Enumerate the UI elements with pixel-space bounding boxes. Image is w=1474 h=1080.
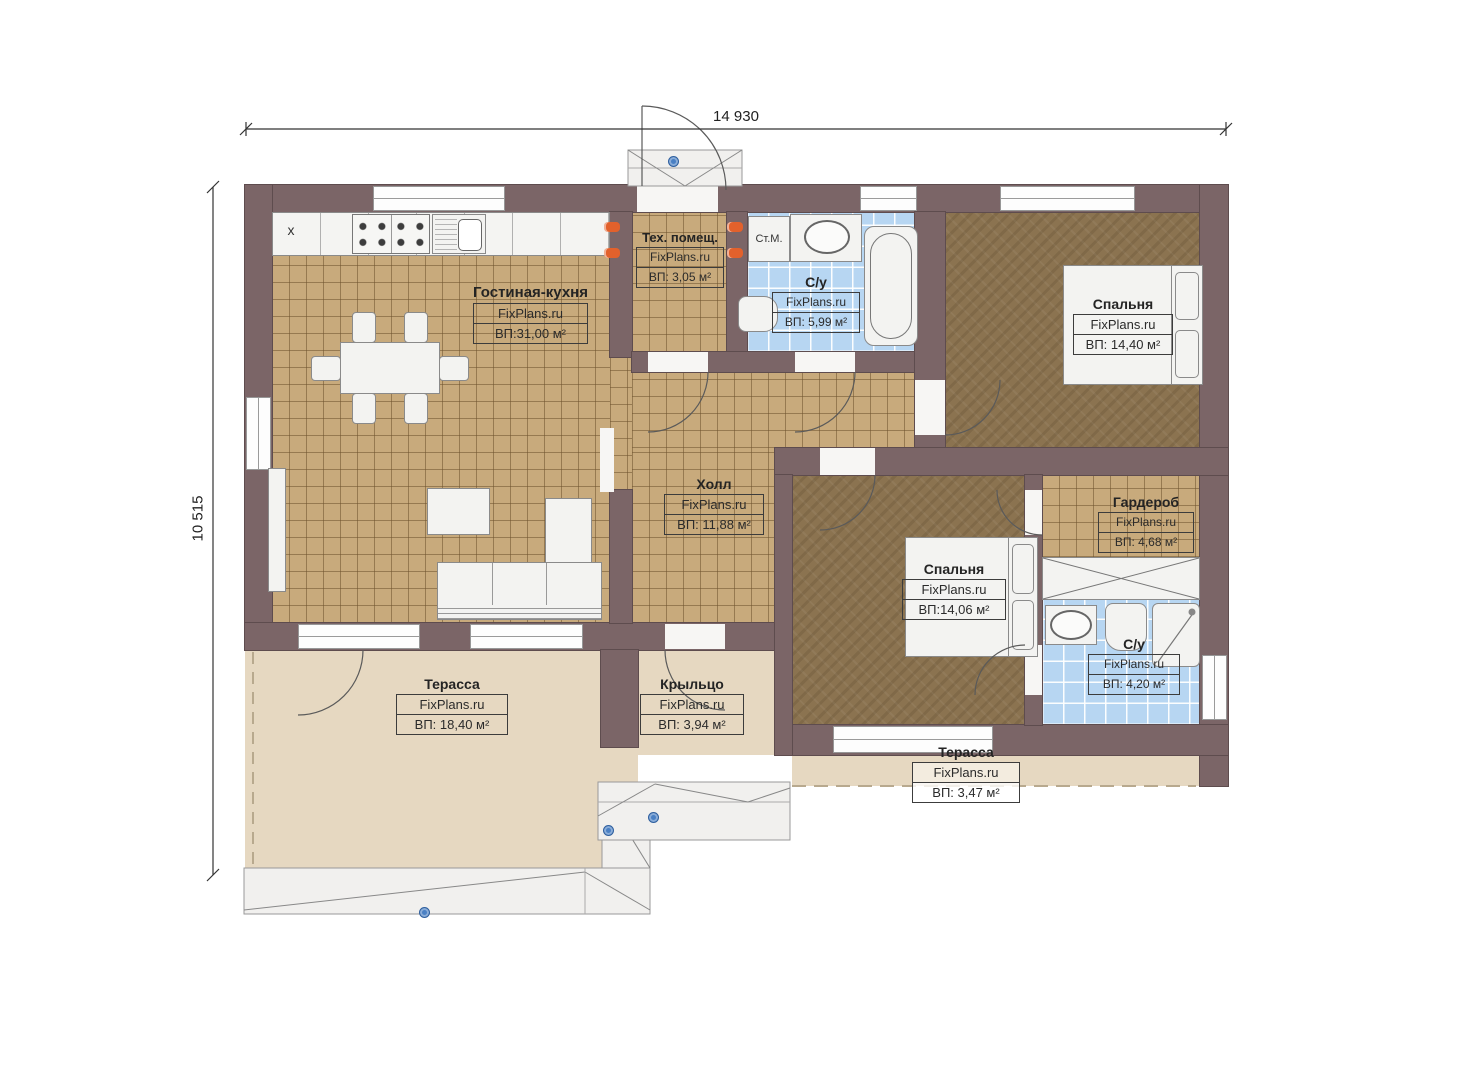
wall-living-tech [610, 212, 632, 357]
sink-icon [1050, 610, 1092, 640]
room-label-bath1: С/у FixPlans.ru ВП: 5,99 м² [772, 274, 860, 333]
room-label-tech: Тех. помещ. FixPlans.ru ВП: 3,05 м² [636, 230, 724, 288]
pillow [1175, 272, 1199, 320]
room-label-bedroom1: Спальня FixPlans.ru ВП: 14,40 м² [1073, 296, 1173, 355]
washing-machine: Ст.М. [748, 216, 790, 262]
area-label: ВП: 3,05 м² [636, 267, 724, 288]
sink-drainboard [435, 218, 457, 250]
area-label: ВП: 4,20 м² [1088, 674, 1180, 695]
brand-label: FixPlans.ru [664, 494, 764, 515]
chair [404, 312, 428, 343]
brand-label: FixPlans.ru [396, 694, 508, 715]
window-bedroom1 [1000, 186, 1135, 211]
entrance-canopy [628, 150, 742, 186]
brand-label: FixPlans.ru [902, 579, 1006, 600]
window-kitchen [373, 186, 505, 211]
socket-icon [604, 222, 620, 232]
room-name: Спальня [1073, 296, 1173, 312]
canopy-marker-icon [668, 156, 679, 167]
pillow [1012, 544, 1034, 594]
sink-icon [804, 220, 850, 254]
area-label: ВП: 14,40 м² [1073, 334, 1173, 355]
dimension-height-label: 10 515 [190, 479, 207, 559]
brand-label: FixPlans.ru [1088, 654, 1180, 675]
room-label-bath2: С/у FixPlans.ru ВП: 4,20 м² [1088, 636, 1180, 695]
wall-hall-right [775, 475, 792, 755]
chair [439, 356, 469, 381]
tv-unit [268, 468, 286, 592]
area-label: ВП: 18,40 м² [396, 714, 508, 735]
sofa-back-lines [438, 605, 601, 619]
canopy-marker-icon [603, 825, 614, 836]
wardrobe-door-opening [1025, 490, 1042, 535]
brand-label: FixPlans.ru [1073, 314, 1173, 335]
wall-terrace-porch-pier [601, 650, 638, 747]
kitchen-sink-unit [432, 214, 486, 254]
chair [352, 393, 376, 424]
window-bathroom1 [860, 186, 917, 211]
sofa [437, 562, 602, 620]
room-label-terrace1: Терасса FixPlans.ru ВП: 18,40 м² [396, 676, 508, 735]
chair [404, 393, 428, 424]
area-label: ВП: 3,47 м² [912, 782, 1020, 803]
sofa-seat-divider [546, 563, 547, 605]
socket-icon [727, 248, 743, 258]
sofa-chaise [545, 498, 592, 564]
canopy-marker-icon [419, 907, 430, 918]
bedroom1-door-opening [915, 380, 945, 435]
room-name: Тех. помещ. [636, 230, 724, 245]
brand-label: FixPlans.ru [640, 694, 744, 715]
room-label-hall: Холл FixPlans.ru ВП: 11,88 м² [664, 476, 764, 535]
window-bathroom2-right [1202, 655, 1227, 720]
room-name: Терасса [912, 744, 1020, 760]
terrace-door-window [298, 624, 420, 649]
brand-label: FixPlans.ru [636, 247, 724, 268]
window-living-terrace [470, 624, 583, 649]
room-name: Гардероб [1098, 494, 1194, 510]
bathroom1-door-opening [795, 352, 855, 372]
bedroom2-door-opening [820, 448, 875, 475]
room-label-terrace2: Терасса FixPlans.ru ВП: 3,47 м² [912, 744, 1020, 803]
area-label: ВП: 3,94 м² [640, 714, 744, 735]
bed-headboard-line [1008, 538, 1009, 656]
room-name: Терасса [396, 676, 508, 692]
fridge-marker: x [278, 222, 304, 238]
window-living-left [246, 397, 271, 470]
room-label-bedroom2: Спальня FixPlans.ru ВП:14,06 м² [902, 561, 1006, 620]
hall-floor-vertical [632, 448, 775, 623]
room-name: Спальня [902, 561, 1006, 577]
entrance-door-opening [637, 185, 718, 212]
room-name: С/у [772, 274, 860, 290]
pillow [1012, 600, 1034, 650]
tech-door-opening [648, 352, 708, 372]
pillow [1175, 330, 1199, 378]
brand-label: FixPlans.ru [473, 303, 588, 324]
stove-icon [352, 214, 430, 254]
brand-label: FixPlans.ru [772, 292, 860, 313]
area-label: ВП: 11,88 м² [664, 514, 764, 535]
hall-floor-band [632, 372, 915, 448]
socket-icon [604, 248, 620, 258]
room-name: Холл [664, 476, 764, 492]
room-label-wardrobe: Гардероб FixPlans.ru ВП: 4,68 м² [1098, 494, 1194, 553]
bathtub-icon [864, 226, 918, 346]
sink-bowl-icon [458, 219, 482, 251]
sofa-seat-divider [492, 563, 493, 605]
area-label: ВП:14,06 м² [902, 599, 1006, 620]
socket-icon [727, 222, 743, 232]
area-label: ВП: 4,68 м² [1098, 532, 1194, 553]
dining-table [340, 342, 440, 394]
wall-living-hall-stub [610, 490, 632, 623]
floor-plan: x Ст.М. [0, 0, 1474, 1080]
room-label-porch: Крыльцо FixPlans.ru ВП: 3,94 м² [640, 676, 744, 735]
room-name: Крыльцо [640, 676, 744, 692]
room-label-living: Гостиная-кухня FixPlans.ru ВП:31,00 м² [473, 284, 588, 344]
brand-label: FixPlans.ru [1098, 512, 1194, 533]
area-label: ВП: 5,99 м² [772, 312, 860, 333]
room-name: Гостиная-кухня [473, 284, 588, 301]
chair [311, 356, 341, 381]
brand-label: FixPlans.ru [912, 762, 1020, 783]
wardrobe-closet-icon [1042, 557, 1200, 600]
coffee-table [427, 488, 490, 535]
washing-machine-label: Ст.М. [755, 233, 782, 245]
chair [352, 312, 376, 343]
living-hall-jamb [600, 428, 614, 492]
porch-door-opening [665, 624, 725, 649]
canopy-marker-icon [648, 812, 659, 823]
dimension-width-label: 14 930 [696, 108, 776, 125]
bathtub-inner [870, 233, 912, 339]
room-name: С/у [1088, 636, 1180, 652]
area-label: ВП:31,00 м² [473, 323, 588, 344]
